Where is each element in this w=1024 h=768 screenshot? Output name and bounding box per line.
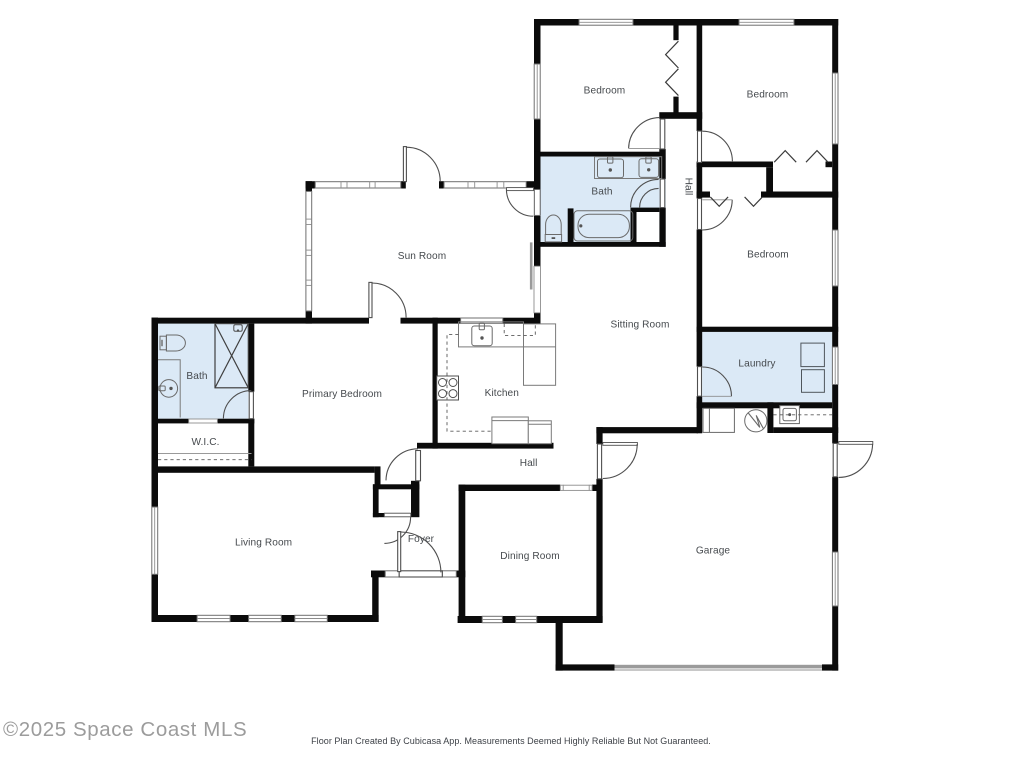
svg-text:Bedroom: Bedroom [747, 90, 789, 101]
svg-text:Dining Room: Dining Room [500, 551, 559, 562]
svg-text:©2025 Space Coast MLS: ©2025 Space Coast MLS [3, 718, 247, 741]
svg-text:Bath: Bath [186, 371, 207, 382]
svg-text:Bath: Bath [591, 187, 612, 198]
svg-text:Bedroom: Bedroom [747, 250, 789, 261]
svg-text:Kitchen: Kitchen [485, 388, 519, 399]
svg-text:W.I.C.: W.I.C. [191, 437, 219, 448]
svg-text:Hall: Hall [520, 458, 538, 469]
svg-text:Floor Plan Created By Cubicasa: Floor Plan Created By Cubicasa App. Meas… [311, 736, 711, 746]
svg-text:Foyer: Foyer [408, 534, 435, 545]
svg-text:Garage: Garage [696, 546, 731, 557]
svg-text:Sun Room: Sun Room [398, 251, 447, 262]
svg-text:Primary Bedroom: Primary Bedroom [302, 389, 382, 400]
svg-text:Laundry: Laundry [738, 359, 776, 370]
svg-text:Sitting Room: Sitting Room [611, 320, 670, 331]
svg-text:Living Room: Living Room [235, 538, 292, 549]
svg-text:Bedroom: Bedroom [584, 86, 626, 97]
svg-text:Hall: Hall [683, 178, 694, 196]
